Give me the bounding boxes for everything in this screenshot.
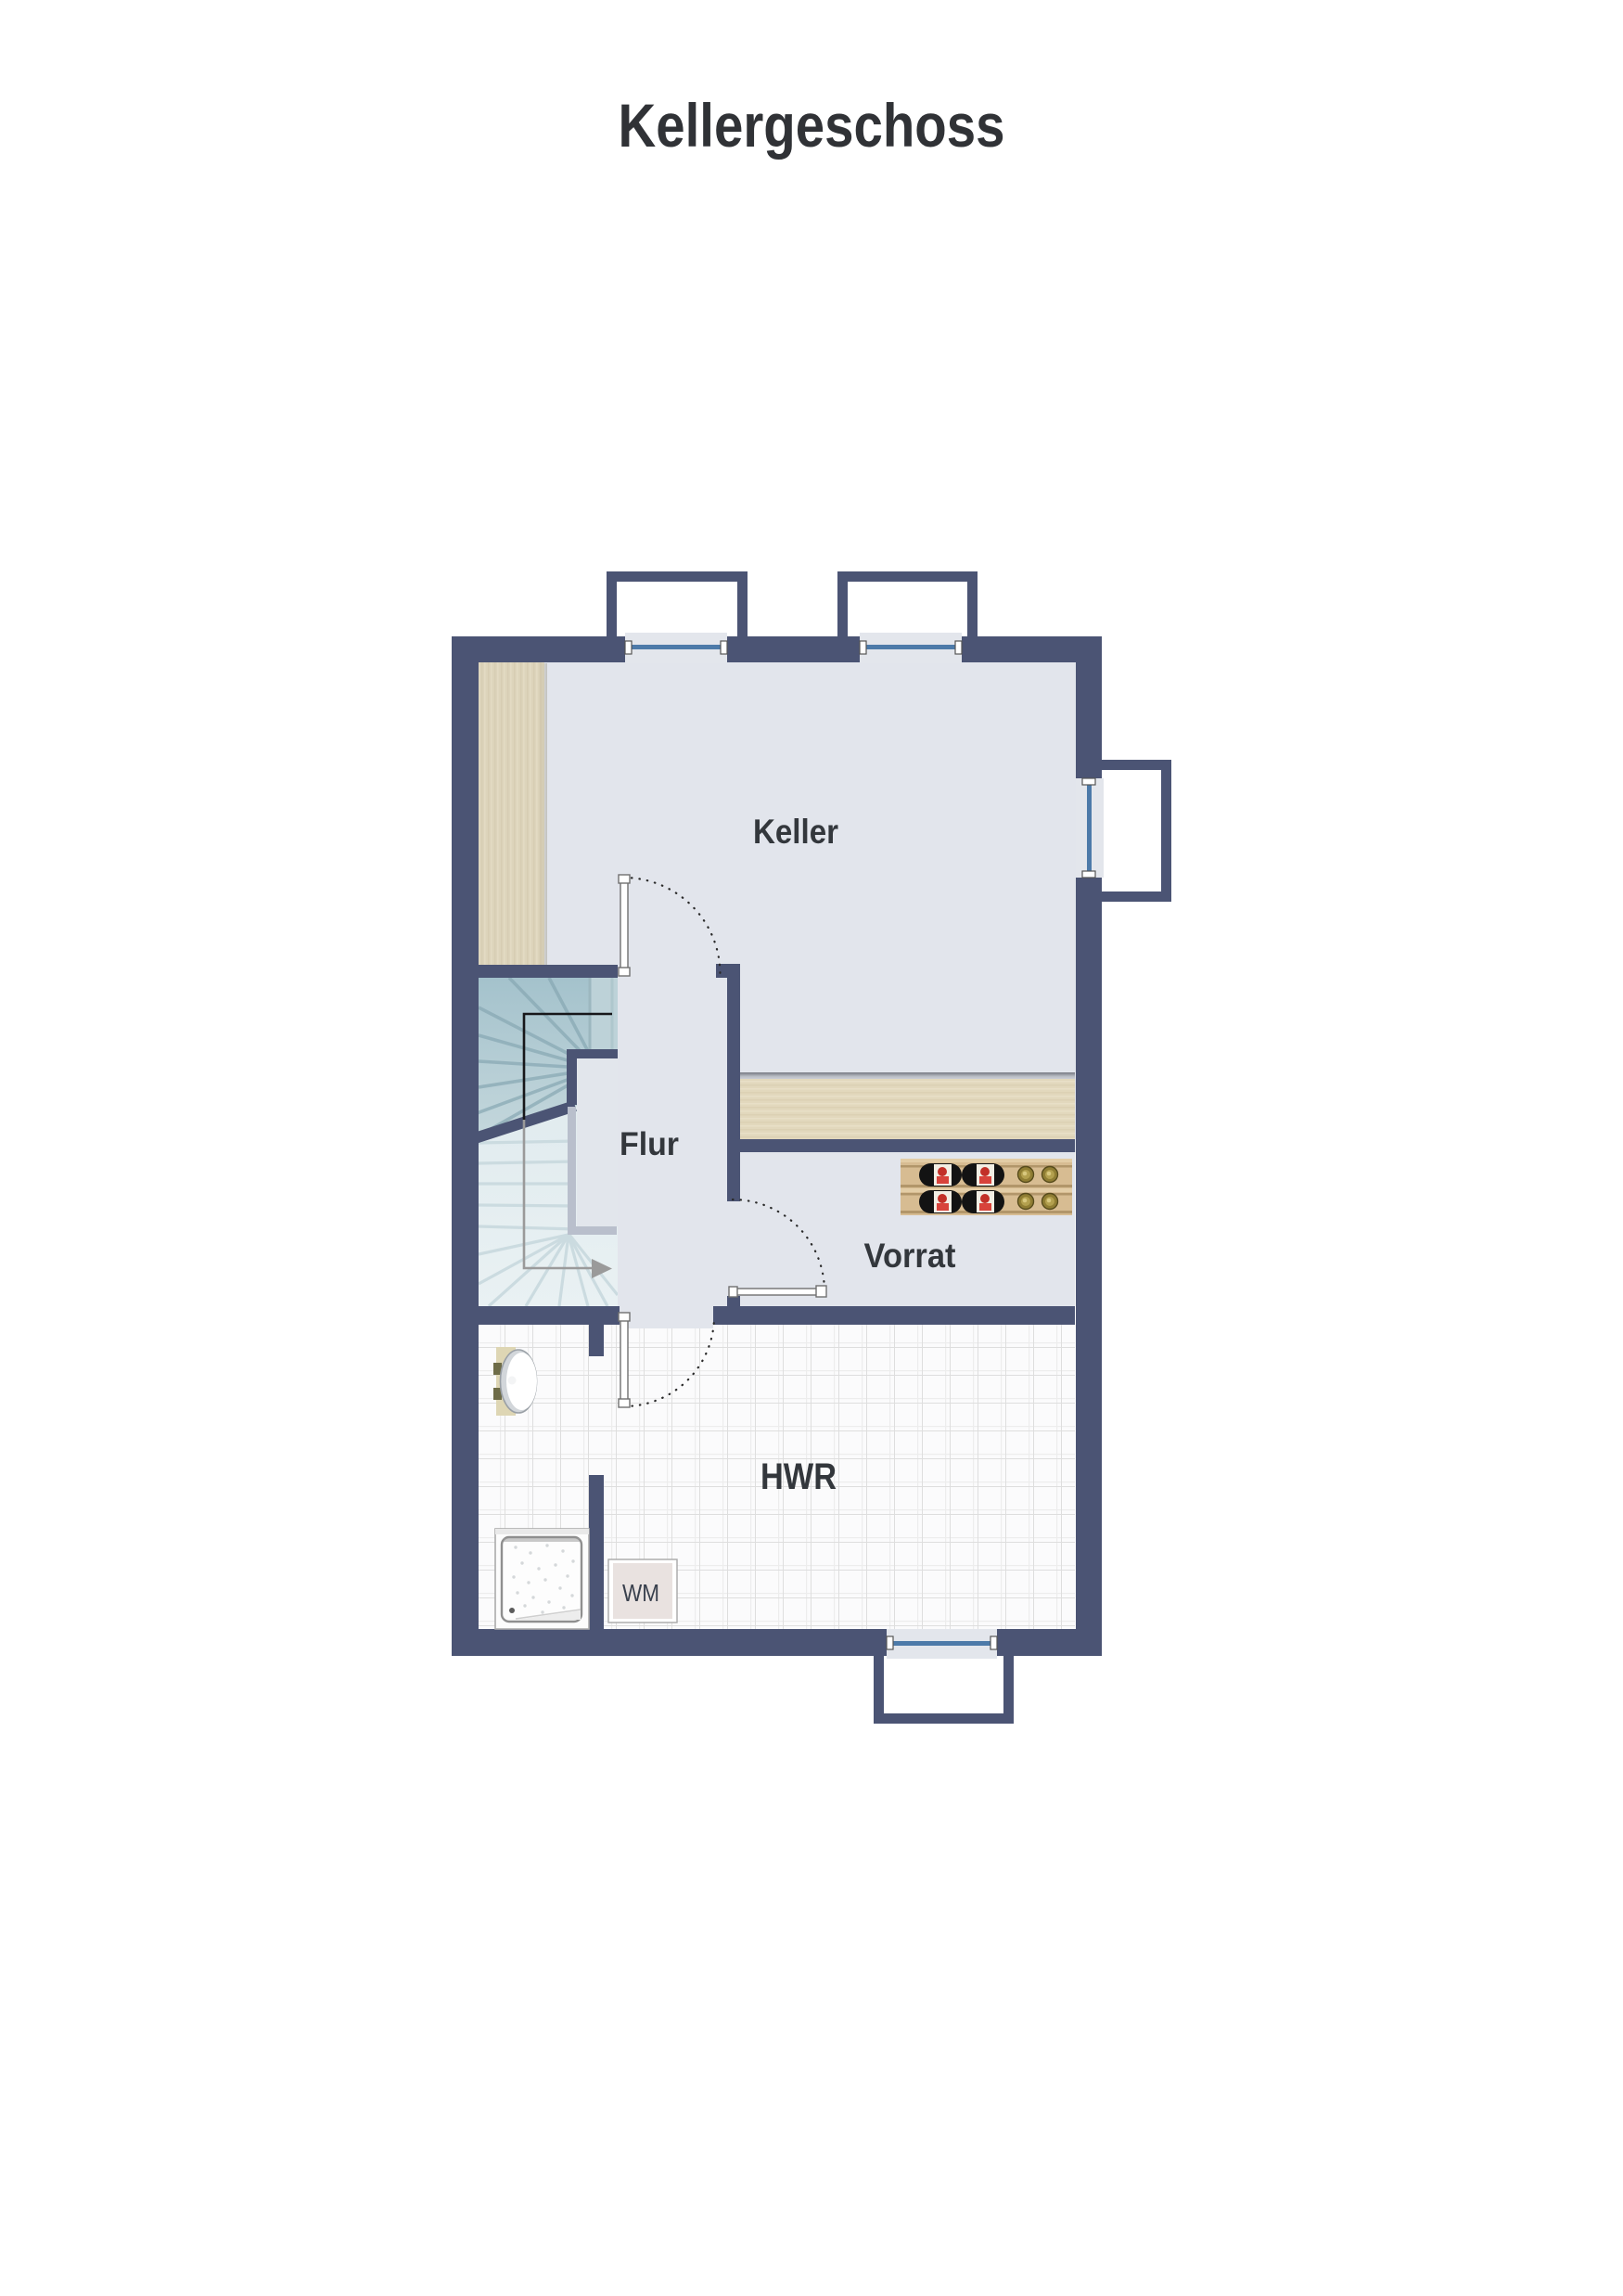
svg-text:HWR: HWR [760, 1456, 837, 1497]
svg-text:Kellergeschoss: Kellergeschoss [619, 91, 1005, 160]
svg-text:Keller: Keller [753, 813, 838, 851]
svg-text:Flur: Flur [620, 1126, 679, 1162]
svg-text:WM: WM [622, 1579, 659, 1607]
svg-text:Vorrat: Vorrat [864, 1237, 956, 1275]
